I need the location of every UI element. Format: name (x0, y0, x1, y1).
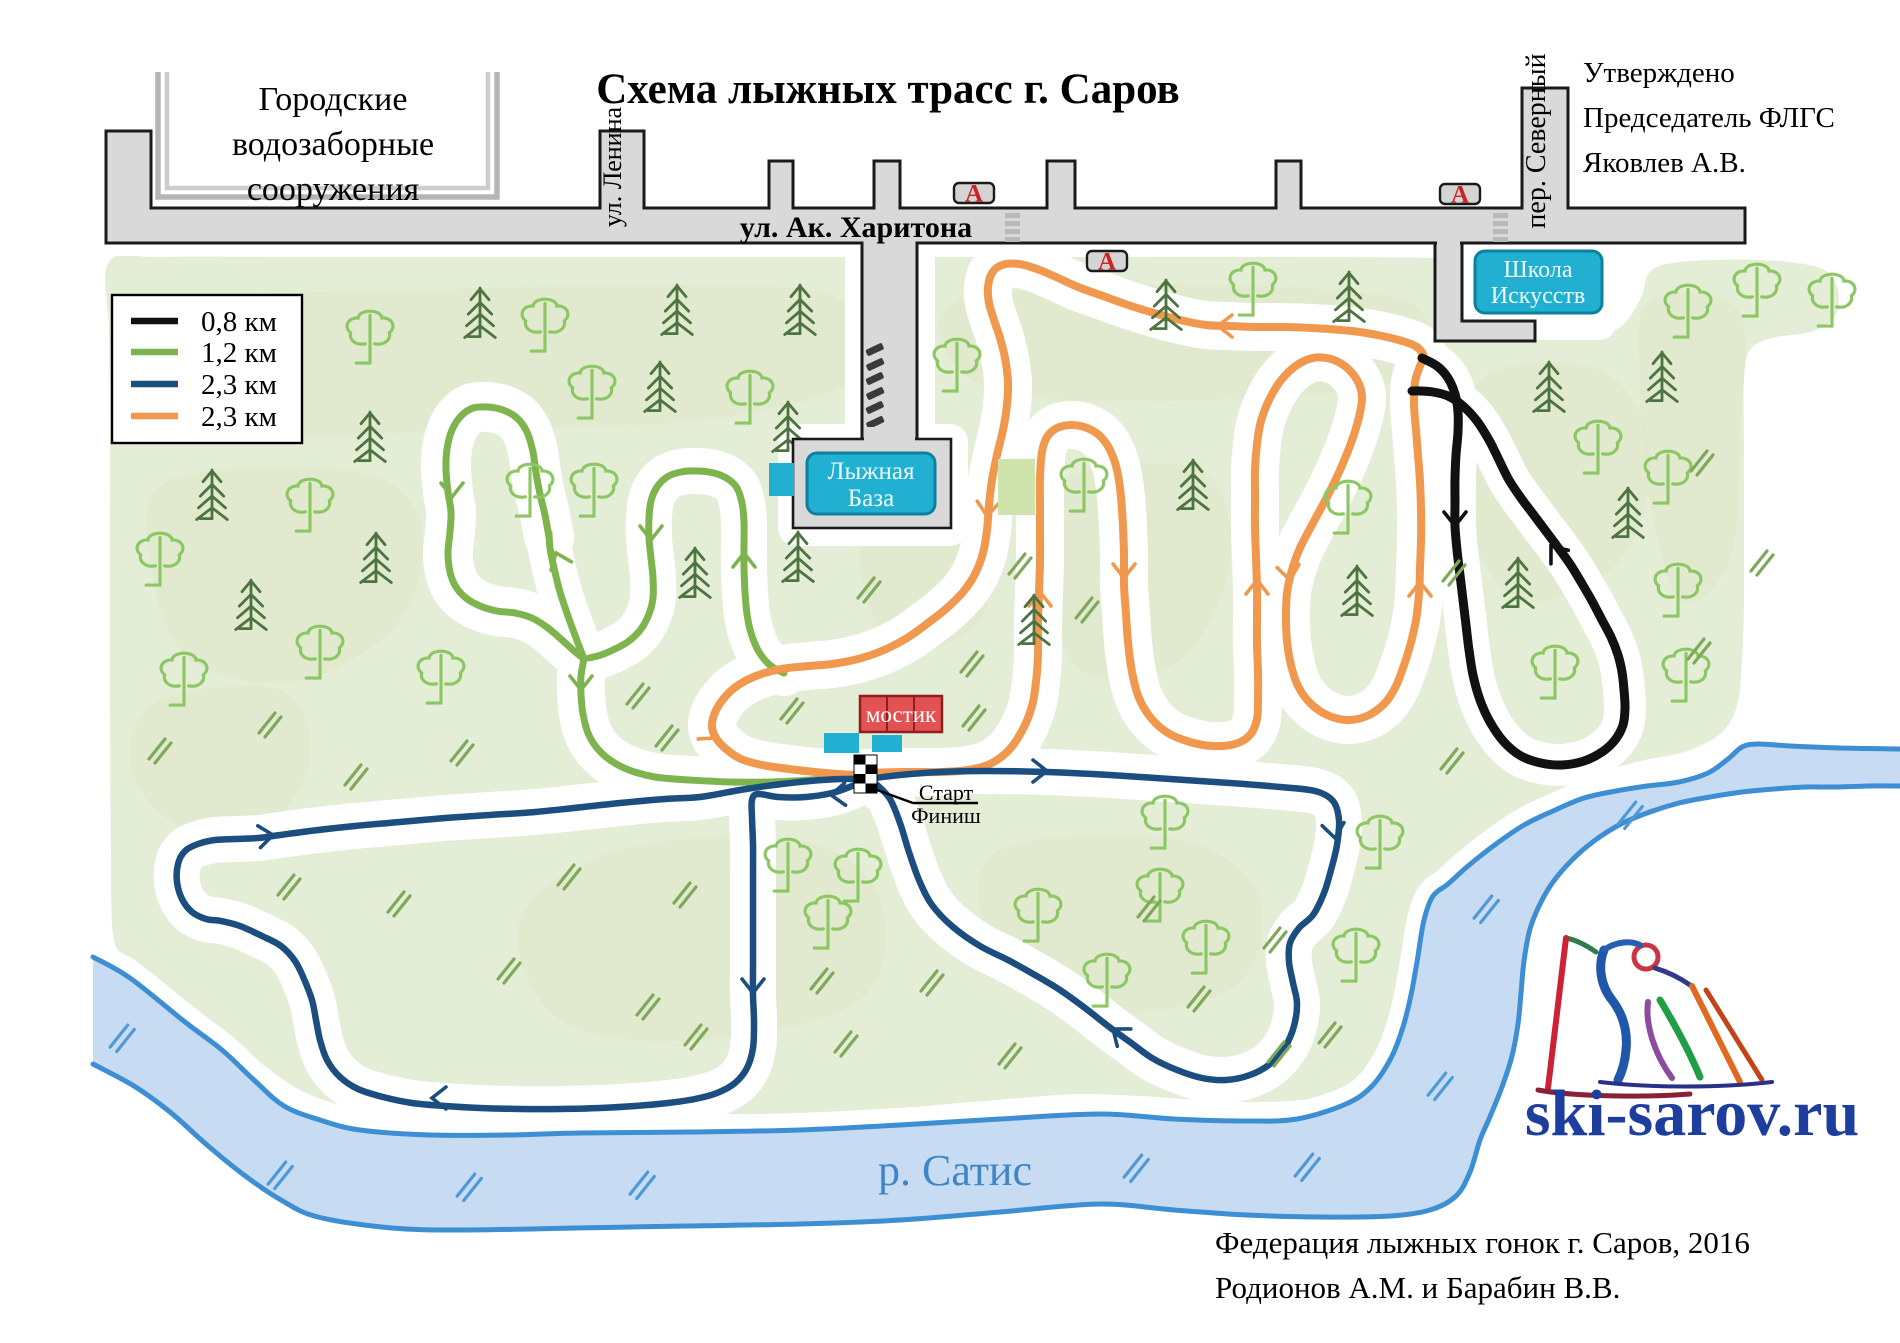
svg-text:База: База (848, 485, 894, 512)
svg-text:Искусств: Искусств (1491, 283, 1585, 309)
svg-text:Родионов А.М. и Барабин В.В.: Родионов А.М. и Барабин В.В. (1215, 1270, 1620, 1305)
svg-text:ул. Ленина: ул. Ленина (598, 106, 627, 227)
svg-text:Председатель ФЛГС: Председатель ФЛГС (1583, 102, 1835, 134)
svg-text:Финиш: Финиш (911, 803, 981, 828)
svg-text:сооружения: сооружения (247, 171, 420, 208)
svg-text:Лыжная: Лыжная (828, 458, 916, 485)
svg-text:0,8 км: 0,8 км (201, 306, 277, 338)
svg-text:Федерация лыжных гонок г. Саро: Федерация лыжных гонок г. Саров, 2016 (1215, 1225, 1750, 1260)
svg-text:Яковлев А.В.: Яковлев А.В. (1583, 147, 1746, 179)
svg-text:водозаборные: водозаборные (232, 126, 434, 163)
svg-text:1,2 км: 1,2 км (201, 337, 277, 369)
svg-text:мостик: мостик (866, 702, 937, 727)
svg-text:ул. Ак. Харитона: ул. Ак. Харитона (740, 211, 972, 244)
svg-text:Школа: Школа (1504, 257, 1573, 283)
svg-text:Старт: Старт (919, 780, 974, 805)
svg-text:Схема лыжных трасс г. Саров: Схема лыжных трасс г. Саров (596, 66, 1180, 113)
svg-text:Утверждено: Утверждено (1583, 57, 1735, 89)
svg-text:А: А (1098, 249, 1116, 276)
svg-text:Городские: Городские (259, 81, 408, 118)
svg-text:2,3 км: 2,3 км (201, 369, 277, 401)
svg-text:ski-sarov.ru: ski-sarov.ru (1525, 1077, 1859, 1150)
svg-text:р. Сатис: р. Сатис (878, 1146, 1032, 1195)
svg-text:пер. Северный: пер. Северный (1521, 53, 1552, 228)
svg-text:2,3 км: 2,3 км (201, 401, 277, 433)
svg-text:А: А (965, 181, 983, 208)
svg-text:А: А (1451, 182, 1469, 209)
